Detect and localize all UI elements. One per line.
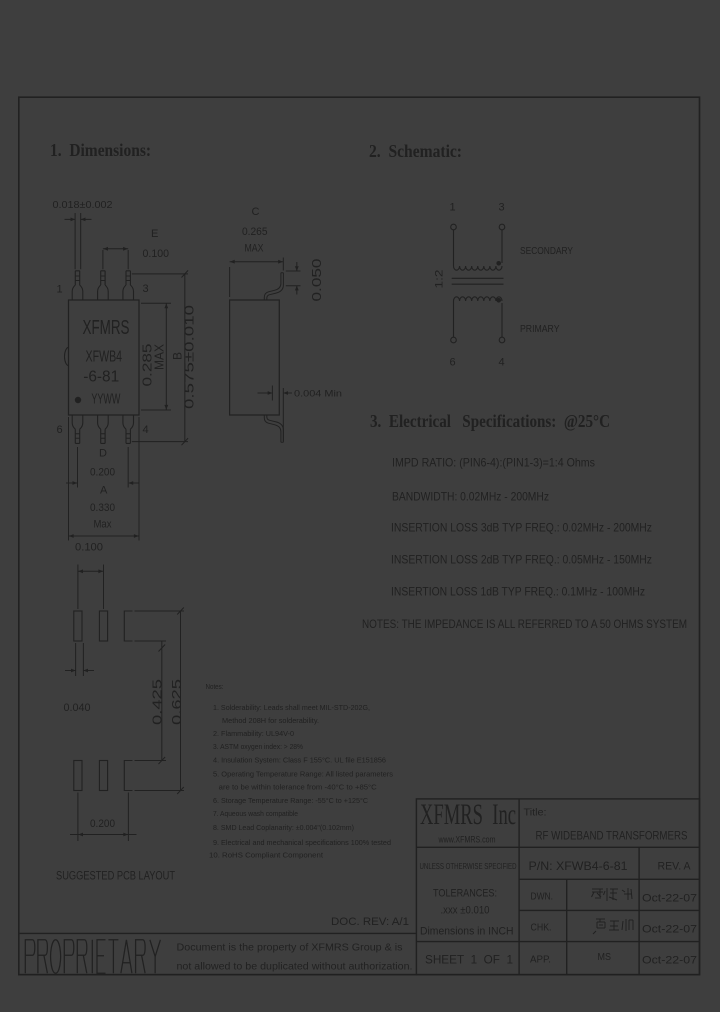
svg-text:P/N: XFWB4-6-81: P/N: XFWB4-6-81: [529, 859, 628, 873]
svg-text:INSERTION LOSS 3dB TYP FREQ.:: INSERTION LOSS 3dB TYP FREQ.: 0.02MHz - …: [391, 521, 652, 535]
svg-text:Method 208H for solderability.: Method 208H for solderability.: [222, 716, 319, 725]
svg-text:CHK.: CHK.: [531, 923, 552, 934]
svg-text:5. Operating Temperature Range: 5. Operating Temperature Range: All list…: [213, 770, 393, 779]
svg-text:SECONDARY: SECONDARY: [520, 245, 573, 257]
svg-text:0.050: 0.050: [309, 259, 324, 302]
svg-text:0.575±0.010: 0.575±0.010: [182, 305, 197, 409]
svg-text:are to be within tolerance fro: are to be within tolerance from -40°C to…: [219, 783, 378, 792]
svg-text:10. RoHS Compliant Component: 10. RoHS Compliant Component: [209, 851, 324, 860]
svg-text:0.265: 0.265: [242, 226, 268, 238]
svg-text:PRIMARY: PRIMARY: [520, 323, 560, 335]
svg-text:Oct-22-07: Oct-22-07: [642, 893, 697, 905]
svg-text:0.004 Min: 0.004 Min: [294, 388, 342, 399]
svg-text:SHEET 1 OF 1: SHEET 1 OF 1: [425, 953, 513, 967]
svg-text:Oct-22-07: Oct-22-07: [642, 924, 697, 936]
svg-text:-6-81: -6-81: [83, 369, 119, 386]
svg-text:Document is the property of XF: Document is the property of XFMRS Group …: [177, 942, 403, 954]
svg-text:E: E: [151, 228, 158, 240]
svg-text:1. Dimensions:: 1. Dimensions:: [50, 140, 151, 160]
svg-text:1. Solderability: Leads shall: 1. Solderability: Leads shall meet MIL-S…: [213, 703, 370, 712]
svg-text:DWN.: DWN.: [531, 892, 554, 903]
svg-text:8. SMD Lead Coplanarity: ±0.00: 8. SMD Lead Coplanarity: ±0.004"(0.102mm…: [213, 823, 354, 832]
svg-text:0.330: 0.330: [90, 502, 115, 514]
svg-text:YYWW: YYWW: [91, 392, 120, 408]
svg-text:Max: Max: [94, 519, 112, 531]
svg-text:2. Flammability: UL94V-0: 2. Flammability: UL94V-0: [213, 729, 294, 738]
svg-text:3. Electrical Specification: 3. Electrical Specifications: @25°C: [370, 411, 610, 431]
svg-text:3: 3: [499, 202, 505, 214]
svg-text:Notes:: Notes:: [206, 682, 224, 691]
svg-text:0.625: 0.625: [169, 679, 184, 725]
svg-text:1: 1: [450, 202, 456, 214]
svg-text:INSERTION LOSS 1dB TYP FREQ.:: INSERTION LOSS 1dB TYP FREQ.: 0.1MHz - 1…: [391, 585, 645, 599]
svg-text:TOLERANCES:: TOLERANCES:: [433, 888, 497, 900]
svg-text:4: 4: [499, 357, 505, 369]
svg-text:4. Insulation System: Class F: 4. Insulation System: Class F 155°C. UL …: [213, 756, 386, 765]
svg-text:6: 6: [450, 357, 456, 369]
svg-text:MS: MS: [598, 952, 612, 963]
svg-text:RF WIDEBAND TRANSFORMERS: RF WIDEBAND TRANSFORMERS: [536, 829, 688, 843]
svg-text:1:2: 1:2: [434, 270, 446, 289]
svg-text:0.200: 0.200: [90, 818, 115, 830]
svg-text:0.018±0.002: 0.018±0.002: [53, 199, 113, 211]
svg-text:UNLESS OTHERWISE SPECIFIED: UNLESS OTHERWISE SPECIFIED: [420, 862, 517, 871]
svg-text:INSERTION LOSS 2dB TYP FREQ.:: INSERTION LOSS 2dB TYP FREQ.: 0.05MHz - …: [391, 553, 652, 567]
svg-text:XFMRS: XFMRS: [83, 317, 130, 339]
svg-text:4: 4: [143, 424, 149, 436]
svg-text:REV. A: REV. A: [658, 861, 692, 873]
svg-text:DOC. REV: A/1: DOC. REV: A/1: [331, 916, 409, 928]
svg-text:Oct-22-07: Oct-22-07: [642, 955, 697, 967]
svg-text:0.425: 0.425: [150, 679, 165, 725]
svg-text:3. ASTM oxygen index: > 28%: 3. ASTM oxygen index: > 28%: [213, 742, 303, 751]
svg-text:NOTES: THE IMPEDANCE IS ALL RE: NOTES: THE IMPEDANCE IS ALL REFERRED TO …: [362, 617, 687, 631]
svg-text:SUGGESTED PCB LAYOUT: SUGGESTED PCB LAYOUT: [56, 871, 175, 883]
svg-text:APP.: APP.: [530, 955, 551, 966]
svg-text:0.100: 0.100: [143, 248, 170, 260]
svg-text:0.040: 0.040: [64, 702, 91, 714]
svg-text:Title:: Title:: [524, 808, 547, 819]
svg-text:7. Aqueous wash compatible: 7. Aqueous wash compatible: [213, 809, 298, 818]
svg-text:6: 6: [57, 424, 63, 436]
svg-text:6. Storage Temperature Range:: 6. Storage Temperature Range: -55°C to +…: [213, 796, 369, 805]
svg-text:IMPD RATIO: (PIN6-4):(PIN1-3)=: IMPD RATIO: (PIN6-4):(PIN1-3)=1:4 Ohms: [392, 456, 595, 470]
svg-text:2. Schematic:: 2. Schematic:: [369, 141, 462, 161]
svg-text:9. Electrical and mechanical s: 9. Electrical and mechanical specificati…: [213, 838, 391, 847]
svg-text:0.200: 0.200: [90, 467, 115, 479]
svg-text:www.XFMRS.com: www.XFMRS.com: [438, 835, 496, 846]
svg-text:XFWB4: XFWB4: [86, 349, 123, 366]
svg-text:C: C: [252, 206, 260, 218]
svg-text:.xxx ±0.010: .xxx ±0.010: [441, 905, 490, 917]
svg-text:BANDWIDTH: 0.02MHz - 200MHz: BANDWIDTH: 0.02MHz - 200MHz: [392, 490, 549, 504]
svg-text:A: A: [100, 485, 108, 497]
svg-text:not allowed to be duplicated w: not allowed to be duplicated without aut…: [177, 961, 413, 973]
svg-text:MAX: MAX: [152, 344, 167, 370]
svg-text:1: 1: [57, 284, 63, 296]
svg-text:D: D: [99, 448, 107, 460]
svg-text:0.100: 0.100: [75, 542, 103, 554]
svg-text:MAX: MAX: [245, 243, 265, 255]
svg-text:Dimensions in INCH: Dimensions in INCH: [420, 926, 514, 938]
svg-text:3: 3: [143, 283, 149, 295]
svg-text:XFMRS Inc: XFMRS Inc: [420, 799, 516, 831]
